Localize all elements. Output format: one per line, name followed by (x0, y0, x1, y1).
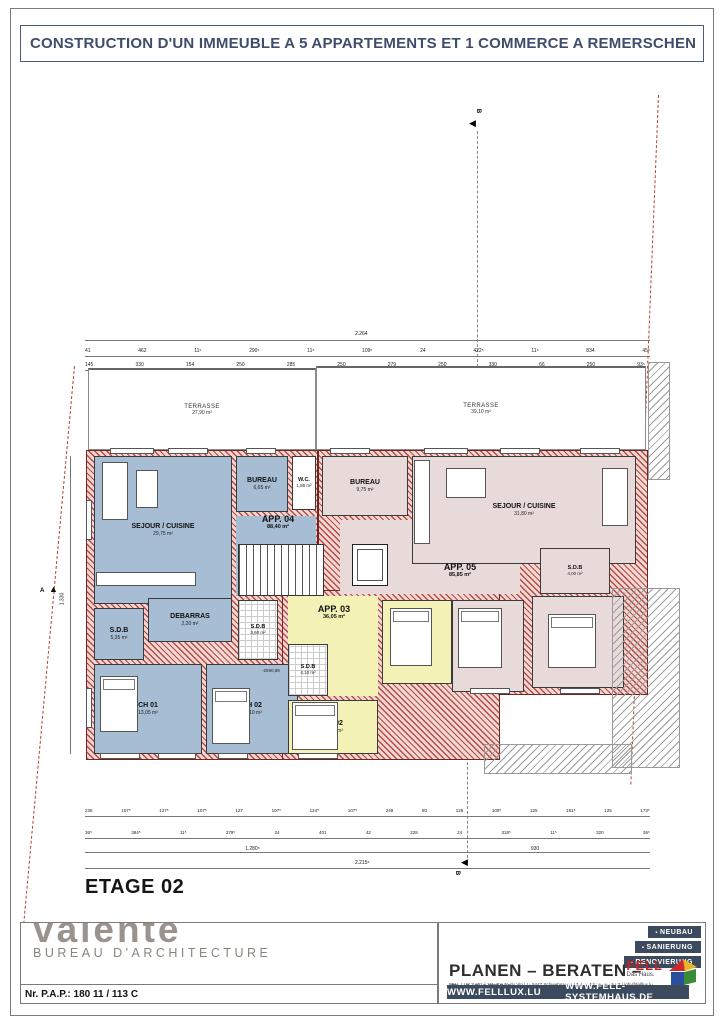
fell-webbar: WWW.FELLLUX.LU WWW.FELL-SYSTEMHAUS.DE (447, 985, 689, 999)
room-app04-bureau: BUREAU 6,65 m² (236, 456, 288, 512)
app05-label: APP. 05 85,85 m² (420, 562, 500, 578)
room-area: 6,65 m² (254, 485, 271, 491)
pillow-symbol (461, 611, 499, 622)
terrace-right-area: 39,10 m² (471, 409, 491, 415)
embankment-hatch (484, 744, 632, 774)
apartment-name: APP. 03 (296, 604, 372, 614)
room-label: BUREAU (247, 477, 277, 485)
dim-line-left-vertical (70, 456, 71, 754)
room-label: CH 01 (138, 702, 158, 710)
pillow-symbol (551, 617, 593, 628)
section-arrow-a-icon: ▲ (49, 585, 58, 594)
fell-house-icon (667, 957, 699, 987)
window-symbol (158, 753, 196, 759)
app03-label: APP. 03 36,05 m² (296, 604, 372, 620)
staircase (238, 544, 324, 596)
dim-line-bottom-2 (85, 838, 650, 839)
kitchen-counter-symbol (414, 460, 430, 544)
embankment-hatch (612, 588, 680, 768)
room-area: 13,05 m² (138, 710, 158, 716)
room-app04-debarras: DEBARRAS 2,20 m² (148, 598, 232, 642)
room-area: 2,20 m² (182, 621, 199, 627)
retaining-wall-hatch (648, 362, 670, 480)
fell-web1[interactable]: WWW.FELLLUX.LU (447, 987, 541, 998)
dim-row-bottom-2: 36⁵384⁵11⁵379⁵244014222824318⁵11⁵32036⁵ (85, 830, 650, 835)
section-label-b-top: B (475, 109, 481, 113)
architect-logo: valente (33, 922, 437, 945)
fell-block: NEUBAUSANIERUNGRENOVIERUNG PLANEN – BERA… (438, 922, 706, 1004)
window-symbol (110, 448, 154, 454)
room-app04-sdb2: S.D.B 3,60 m² (238, 600, 278, 660)
room-area: 4,10 m² (300, 670, 315, 675)
kitchen-counter-symbol (96, 572, 196, 586)
apartment-area: 36,05 m² (296, 614, 372, 620)
level-annotation: -2590,88 (262, 668, 280, 673)
room-app04-sdb1: S.D.B 5,35 m² (94, 608, 144, 660)
bed-symbol (548, 614, 596, 668)
pillow-symbol (393, 611, 429, 622)
apartment-area: 88,40 m² (240, 524, 316, 530)
terrace-right: TERRASSE 39,10 m² (316, 366, 646, 450)
window-symbol (86, 688, 92, 728)
bed-symbol (458, 608, 502, 668)
dim-line-top-total (85, 340, 650, 341)
dim-line-top-2 (85, 356, 650, 357)
architect-block: valente BUREAU D'ARCHITECTURE Nr. P.A.P.… (20, 922, 438, 1004)
app04-label: APP. 04 88,40 m² (240, 514, 316, 530)
table-symbol (136, 470, 158, 508)
room-area: 5,35 m² (111, 635, 128, 641)
dim-bottom-total: 2.215⁵ (355, 860, 370, 866)
window-symbol (560, 688, 600, 694)
dim-line-bottom-total (85, 868, 650, 869)
dim-line-bottom-1 (85, 816, 650, 817)
pillow-symbol (295, 705, 335, 716)
window-symbol (218, 753, 248, 759)
dim-top-total: 2.264 (355, 331, 368, 337)
room-label: BUREAU (350, 479, 380, 487)
section-label-a: A (40, 588, 44, 594)
room-label: SEJOUR / CUISINE (131, 523, 194, 531)
sofa-symbol (102, 462, 128, 520)
room-area: 4,00 m² (567, 571, 582, 576)
room-area: 1,85 m² (296, 483, 311, 488)
room-app04-wc: W.C. 1,85 m² (292, 456, 316, 510)
room-area: 29,75 m² (153, 531, 173, 537)
window-symbol (500, 448, 540, 454)
elevator-car (357, 549, 383, 581)
drawing-sheet: CONSTRUCTION D'UN IMMEUBLE A 5 APPARTEME… (0, 0, 723, 1024)
dim-row-top-2: 4146211⁵290⁵11⁵109⁵24422⁵11⁵83445⁵ (85, 348, 650, 354)
window-symbol (86, 500, 92, 540)
room-label: DEBARRAS (170, 613, 210, 621)
title-block: CONSTRUCTION D'UN IMMEUBLE A 5 APPARTEME… (20, 25, 704, 62)
room-area: 31,80 m² (514, 511, 534, 517)
window-symbol (298, 753, 338, 759)
dim-left-vertical: 1.330 (59, 593, 65, 606)
bed-symbol (212, 688, 250, 744)
pap-number: Nr. P.A.P.: 180 11 / 113 C (25, 989, 138, 1000)
bed-symbol (292, 702, 338, 750)
sheet-title: CONSTRUCTION D'UN IMMEUBLE A 5 APPARTEME… (30, 35, 696, 52)
pillow-symbol (215, 691, 247, 702)
fell-logo: FELL Das Haus. (627, 959, 664, 978)
sofa-symbol (602, 468, 628, 526)
section-arrow-b-bottom-icon: ◀ (461, 858, 468, 867)
room-app05-bureau: BUREAU 9,75 m² (322, 456, 408, 516)
elevator-shaft (352, 544, 388, 586)
terrace-left-area: 27,90 m² (192, 410, 212, 416)
architect-subtitle: BUREAU D'ARCHITECTURE (33, 946, 437, 960)
window-symbol (330, 448, 370, 454)
dim-seg-left: 1.280⁵ (85, 846, 420, 853)
section-line-b-top (477, 131, 478, 367)
dim-row-bottom-1: 235107⁵127⁵107⁵127107⁵124⁵107⁵2488012510… (85, 808, 650, 813)
bed-symbol (390, 608, 432, 666)
room-area: 3,60 m² (250, 630, 265, 635)
room-app05-sdb: S.D.B 4,00 m² (540, 548, 610, 594)
floor-label: ETAGE 02 (85, 876, 184, 899)
window-symbol (168, 448, 208, 454)
apartment-name: APP. 05 (420, 562, 500, 572)
room-label: SEJOUR / CUISINE (492, 503, 555, 511)
window-symbol (100, 753, 140, 759)
window-symbol (470, 688, 510, 694)
apartment-name: APP. 04 (240, 514, 316, 524)
room-label: S.D.B (110, 627, 129, 635)
bed-symbol (100, 676, 138, 732)
section-arrow-b-top-icon: ◀ (469, 119, 476, 128)
dim-seg-right: 930 (420, 846, 650, 853)
pillow-symbol (103, 679, 135, 690)
terrace-left: TERRASSE 27,90 m² (88, 368, 316, 450)
section-label-b-bottom: B (454, 871, 460, 875)
window-symbol (246, 448, 276, 454)
room-app03-sdb: S.D.B 4,10 m² (288, 644, 328, 696)
window-symbol (424, 448, 468, 454)
window-symbol (580, 448, 620, 454)
fell-brand: FELL (627, 959, 664, 972)
apartment-area: 85,85 m² (420, 572, 500, 578)
room-area: 9,75 m² (357, 487, 374, 493)
table-symbol (446, 468, 486, 498)
